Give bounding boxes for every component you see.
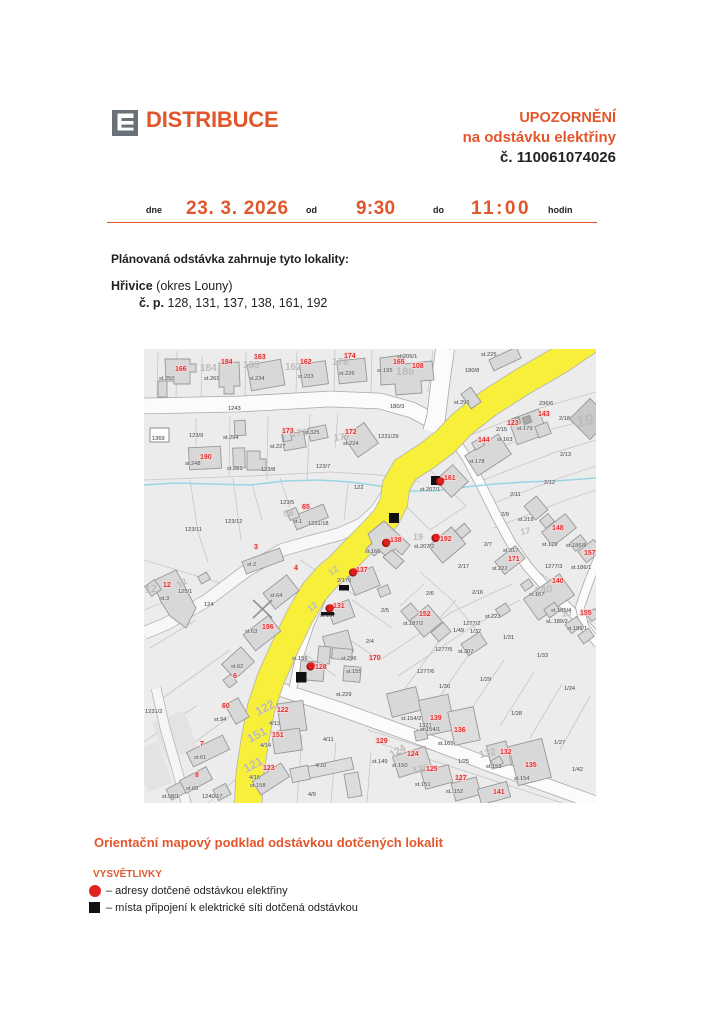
svg-text:157: 157 [584,550,596,557]
svg-text:184: 184 [200,363,217,374]
svg-text:191: 191 [575,410,596,431]
svg-text:4/15: 4/15 [249,775,260,781]
svg-text:129: 129 [376,738,388,745]
svg-text:st.179: st.179 [542,542,558,548]
svg-text:st.153: st.153 [486,764,502,770]
svg-text:123/8: 123/8 [261,467,275,473]
svg-text:st.179: st.179 [517,426,533,432]
svg-text:st.187/2: st.187/2 [403,621,423,627]
svg-text:166: 166 [175,366,187,373]
svg-text:125/1: 125/1 [178,589,192,595]
svg-text:st.156: st.156 [292,656,308,662]
svg-text:8: 8 [195,772,199,779]
svg-text:19: 19 [413,532,423,542]
svg-text:140: 140 [552,578,564,585]
svg-text:132: 132 [500,749,512,756]
svg-text:st.189/1: st.189/1 [567,626,587,632]
svg-text:st.223: st.223 [485,614,501,620]
svg-text:st.2: st.2 [247,562,256,568]
svg-text:1/28: 1/28 [511,711,522,717]
svg-text:4/13: 4/13 [269,721,280,727]
svg-text:st.63: st.63 [245,629,257,635]
svg-text:190: 190 [200,454,212,461]
svg-text:123/7: 123/7 [316,464,330,470]
svg-text:128: 128 [315,664,327,671]
svg-text:st.178: st.178 [469,459,485,465]
svg-text:170: 170 [369,655,381,662]
svg-text:2/12: 2/12 [544,480,555,486]
svg-text:st.150: st.150 [392,763,408,769]
svg-text:136: 136 [454,727,466,734]
svg-text:2/170: 2/170 [337,578,351,584]
svg-text:174: 174 [344,353,356,360]
svg-text:1/31: 1/31 [503,635,514,641]
svg-text:1243: 1243 [228,406,241,412]
svg-text:2/18: 2/18 [559,416,570,422]
svg-text:12: 12 [163,582,171,589]
svg-text:st.62: st.62 [231,664,243,670]
svg-text:1/27: 1/27 [554,740,565,746]
svg-text:2/16: 2/16 [472,590,483,596]
svg-text:2/15: 2/15 [496,427,507,433]
svg-text:2/6: 2/6 [426,591,434,597]
svg-text:st.1: st.1 [293,519,302,525]
svg-text:st.222: st.222 [492,566,508,572]
svg-text:st.185/4: st.185/4 [551,608,571,614]
svg-text:143: 143 [538,411,550,418]
svg-text:st.186/2: st.186/2 [566,543,586,549]
svg-text:60: 60 [222,703,230,710]
svg-text:135: 135 [525,762,537,769]
svg-text:st.269: st.269 [204,376,220,382]
svg-text:1231/18: 1231/18 [308,521,329,527]
svg-text:st.154: st.154 [514,776,530,782]
svg-text:st.233: st.233 [298,374,314,380]
svg-text:st.3: st.3 [160,596,169,602]
svg-text:2/7: 2/7 [484,542,492,548]
svg-text:st.94: st.94 [214,717,226,723]
svg-text:1/29: 1/29 [480,677,491,683]
svg-text:st.167: st.167 [529,592,545,598]
svg-text:2/11: 2/11 [510,492,521,498]
svg-text:st.281: st.281 [227,466,243,472]
svg-text:171: 171 [508,556,520,563]
svg-text:st.250: st.250 [159,376,175,382]
svg-text:st.296: st.296 [454,400,470,406]
svg-text:141: 141 [493,789,505,796]
svg-text:st.224: st.224 [343,441,359,447]
svg-text:123/12: 123/12 [225,519,242,525]
svg-text:2/13: 2/13 [560,452,571,458]
svg-text:1240/17: 1240/17 [202,794,223,800]
svg-text:st.154/1: st.154/1 [420,727,440,733]
svg-text:2/4: 2/4 [366,639,374,645]
svg-text:180/8: 180/8 [465,368,479,374]
svg-text:st.294: st.294 [223,435,239,441]
svg-text:17: 17 [520,525,532,537]
svg-text:155: 155 [580,610,592,617]
svg-text:1/30: 1/30 [439,684,450,690]
svg-text:148: 148 [552,525,564,532]
svg-text:1277/3: 1277/3 [545,564,562,570]
svg-text:127: 127 [455,775,467,782]
svg-text:4/14: 4/14 [260,743,271,749]
svg-text:1277/5: 1277/5 [435,647,452,653]
svg-text:139: 139 [430,715,442,722]
svg-text:st.64: st.64 [270,593,282,599]
svg-text:st.186/1: st.186/1 [571,565,591,571]
svg-text:137: 137 [356,567,368,574]
svg-text:125: 125 [426,766,438,773]
svg-text:1231/29: 1231/29 [378,434,399,440]
svg-text:sL.152: sL.152 [446,789,463,795]
svg-text:st.154/2: st.154/2 [401,716,421,722]
svg-text:1/32: 1/32 [470,629,481,635]
svg-text:162: 162 [300,359,312,366]
svg-text:7: 7 [200,741,204,748]
svg-text:131: 131 [333,603,345,610]
svg-text:4/9: 4/9 [308,792,316,798]
svg-text:123/5: 123/5 [280,500,294,506]
svg-text:st.219: st.219 [518,517,534,523]
svg-text:st.207/2: st.207/2 [414,544,434,550]
svg-text:st.58/1: st.58/1 [162,794,179,800]
svg-text:st.165: st.165 [438,741,454,747]
svg-text:152: 152 [419,611,431,618]
svg-text:180/3: 180/3 [390,404,404,410]
svg-text:st.317: st.317 [503,548,519,554]
svg-text:1277/6: 1277/6 [417,669,434,675]
svg-text:4/11: 4/11 [323,737,334,743]
svg-text:st.225: st.225 [481,352,497,358]
svg-text:124: 124 [204,602,214,608]
svg-text:1277/2: 1277/2 [463,621,480,627]
svg-text:163: 163 [254,354,266,361]
svg-text:165: 165 [393,359,405,366]
svg-text:st.163: st.163 [497,437,513,443]
svg-text:161: 161 [444,475,456,482]
svg-text:184: 184 [221,359,233,366]
svg-text:st.155: st.155 [346,669,362,675]
svg-text:1231/2: 1231/2 [145,709,162,715]
svg-text:236/6: 236/6 [539,401,553,407]
svg-text:1/49: 1/49 [453,628,464,634]
svg-text:st.151: st.151 [415,782,431,788]
svg-text:st.207/1: st.207/1 [420,487,440,493]
svg-text:3: 3 [254,544,258,551]
svg-text:st.234: st.234 [249,376,265,382]
svg-text:1/25: 1/25 [458,759,469,765]
svg-text:2/9: 2/9 [501,512,509,518]
svg-text:st.296: st.296 [341,656,357,662]
svg-text:151: 151 [272,732,284,739]
svg-text:123: 123 [263,765,275,772]
svg-text:144: 144 [478,437,490,444]
svg-text:4: 4 [294,565,298,572]
svg-text:2/17: 2/17 [458,564,469,570]
svg-text:st.227: st.227 [270,444,286,450]
svg-text:185: 185 [243,360,260,371]
svg-text:st.166: st.166 [365,549,381,555]
svg-text:122: 122 [354,485,364,491]
svg-text:138: 138 [390,537,402,544]
svg-text:6: 6 [233,673,237,680]
svg-text:192: 192 [440,536,452,543]
svg-text:st.61: st.61 [194,755,206,761]
svg-text:196: 196 [262,624,274,631]
svg-text:123/9: 123/9 [189,433,203,439]
svg-text:4/10: 4/10 [315,763,326,769]
svg-text:108: 108 [412,363,424,370]
svg-text:1/42: 1/42 [572,767,583,773]
svg-text:122: 122 [277,707,289,714]
svg-text:st.158: st.158 [250,783,266,789]
svg-text:st.195: st.195 [377,368,393,374]
svg-text:st.307: st.307 [458,649,474,655]
svg-text:st.229: st.229 [336,692,352,698]
svg-text:124: 124 [407,751,419,758]
svg-text:1369: 1369 [152,436,165,442]
svg-text:st.60: st.60 [186,786,198,792]
svg-text:st.226: st.226 [339,371,355,377]
svg-text:st.325: st.325 [304,430,320,436]
svg-text:2/5: 2/5 [381,608,389,614]
svg-text:1/24: 1/24 [564,686,575,692]
svg-text:sL.189/2: sL.189/2 [546,619,568,625]
svg-text:1/33: 1/33 [537,653,548,659]
svg-text:st.248: st.248 [185,461,201,467]
svg-text:123/11: 123/11 [185,527,202,533]
svg-text:12: 12 [144,583,157,596]
svg-text:123: 123 [507,420,519,427]
svg-text:58: 58 [283,507,295,519]
svg-text:65: 65 [302,504,310,511]
svg-text:st.149: st.149 [372,759,388,765]
svg-text:172: 172 [345,429,357,436]
svg-text:173: 173 [282,428,294,435]
